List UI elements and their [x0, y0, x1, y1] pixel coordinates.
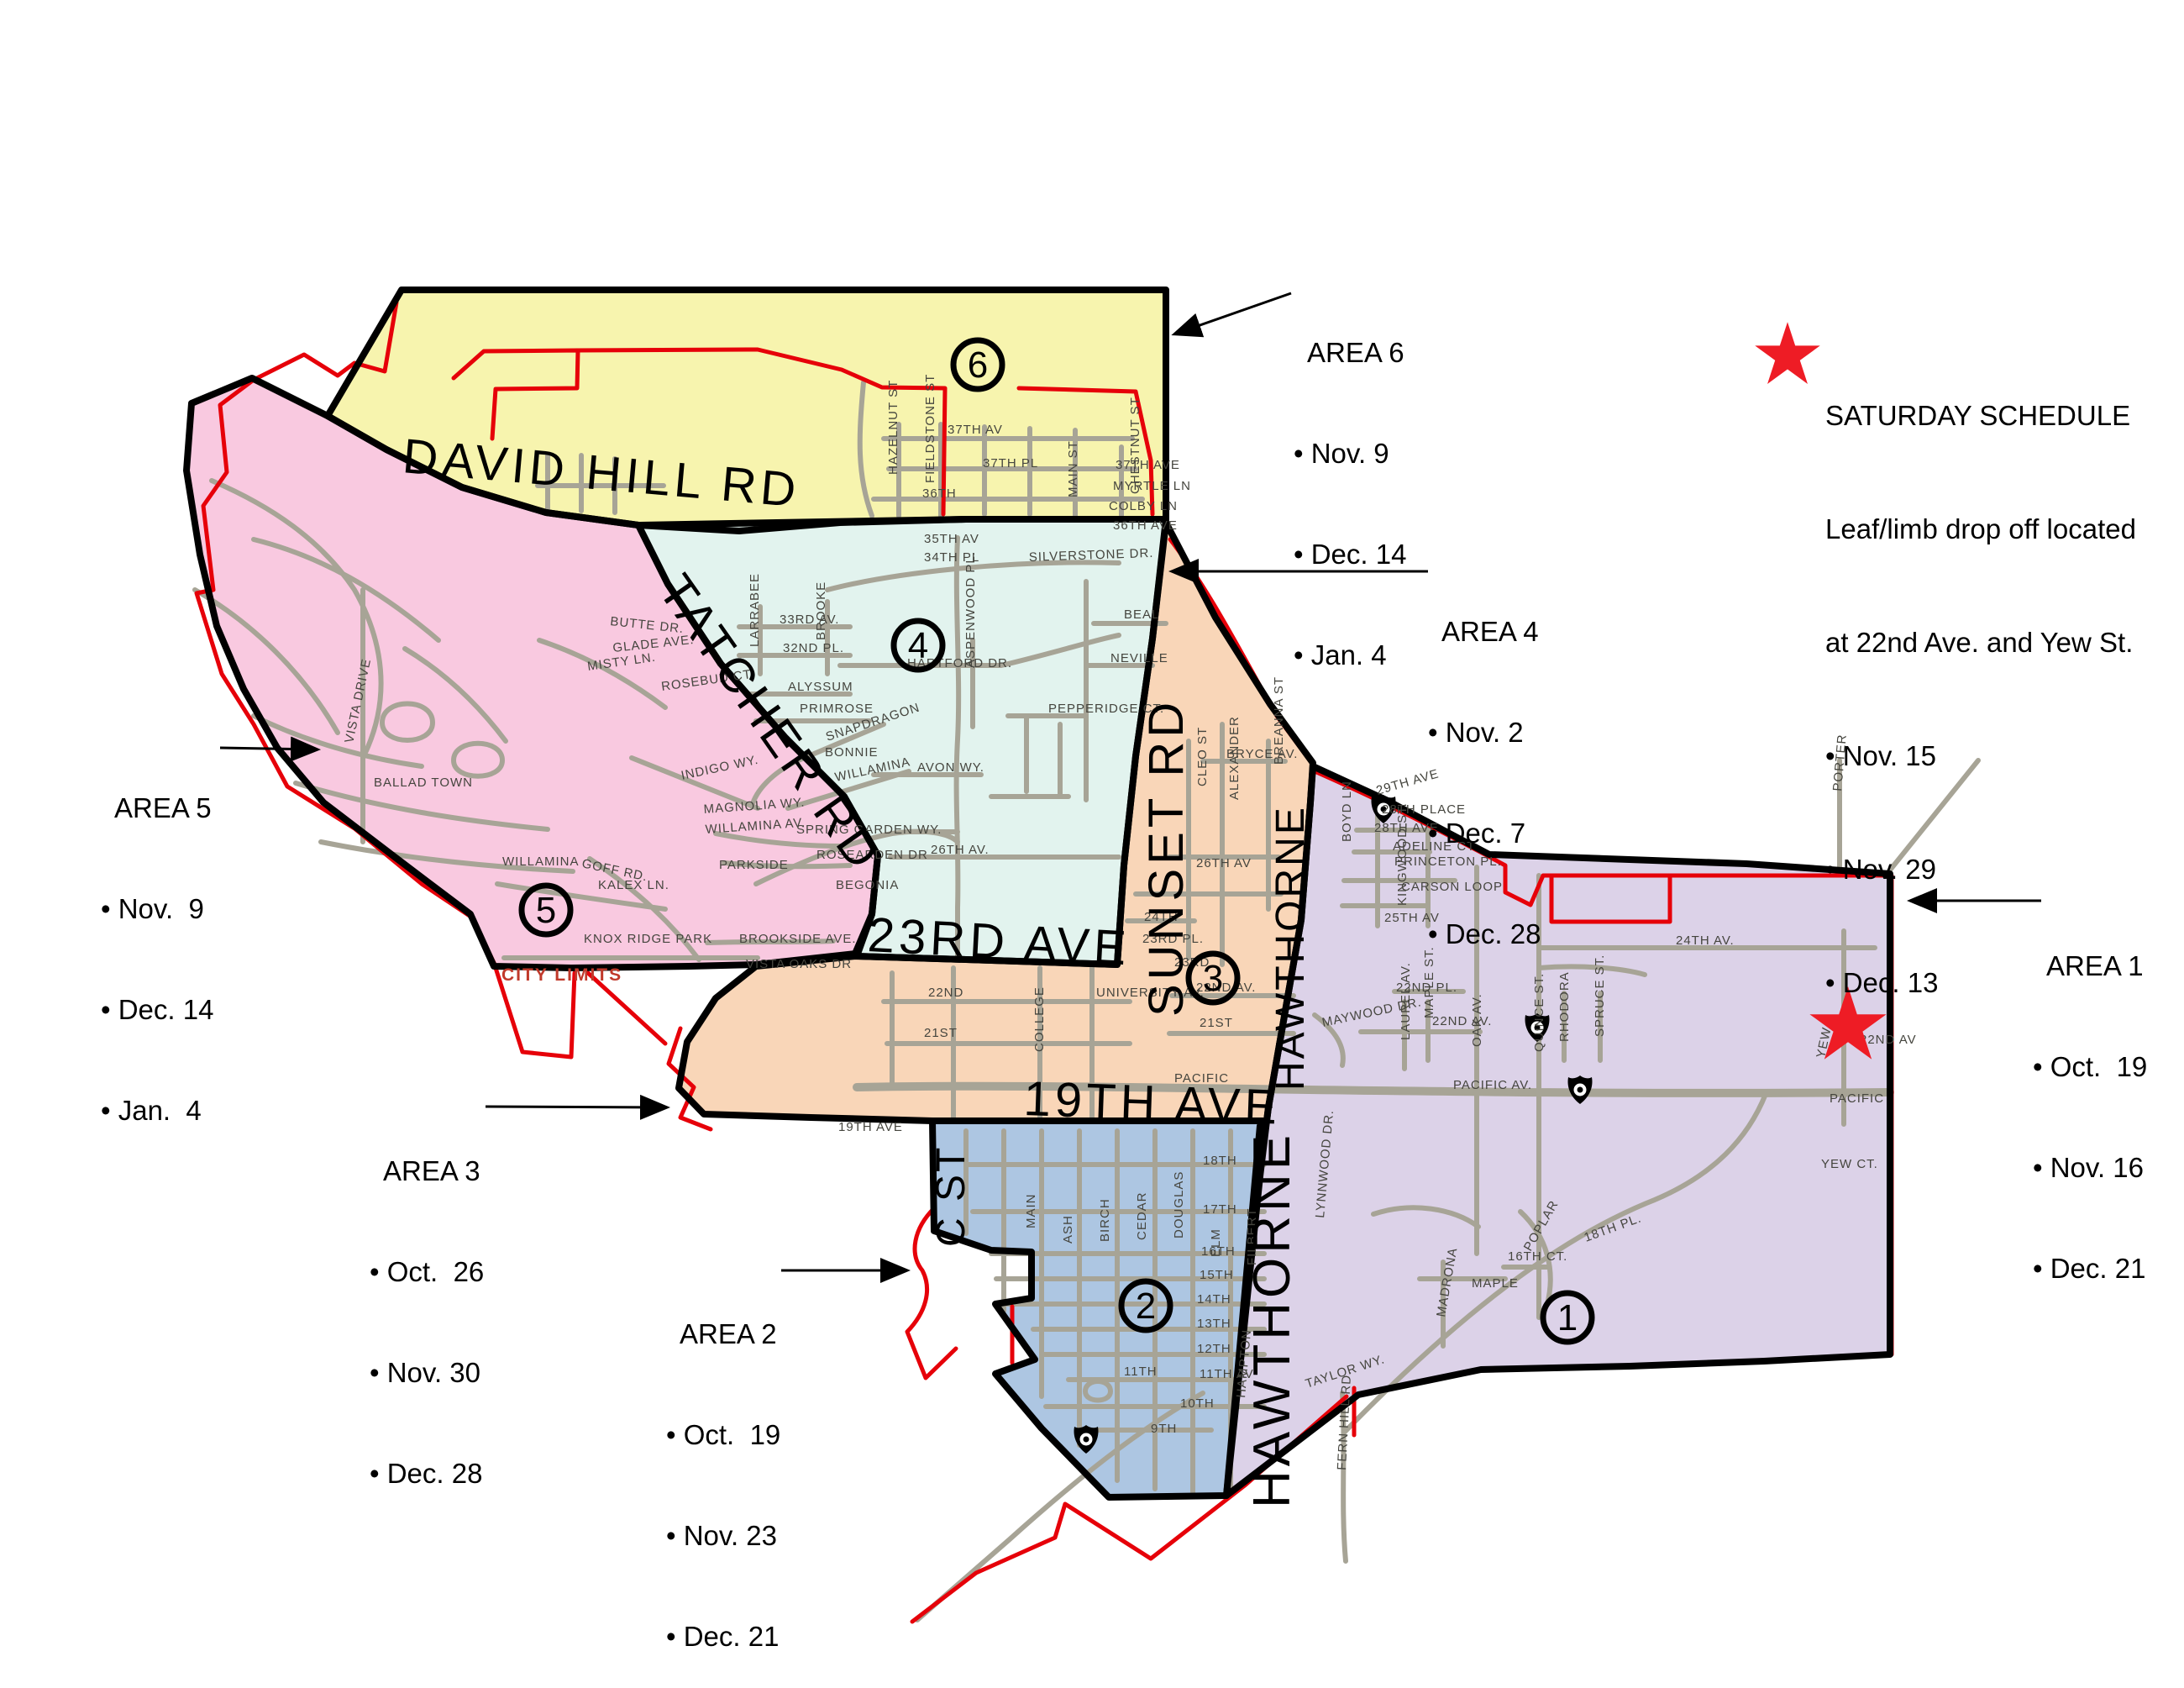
area5-date: • Jan. 4 [101, 1094, 213, 1128]
sunset-rd-label: SUNSET RD [1139, 698, 1194, 1017]
street-label: OAK AV. [1470, 993, 1484, 1047]
street-label: BROOKSIDE AVE. [739, 932, 857, 946]
street-label: 9TH [1151, 1422, 1177, 1436]
street-label: WILLAMINA [502, 855, 580, 869]
area3-number: 3 [1203, 958, 1223, 999]
area4-date: • Dec. 7 [1428, 817, 1541, 850]
street-label: PRIMROSE [800, 702, 874, 716]
area5-date: • Nov. 9 [101, 892, 213, 926]
saturday-schedule-callout: SATURDAY SCHEDULE Leaf/limb drop off loc… [1825, 321, 2136, 1039]
street-label: MAIN ST [1066, 440, 1080, 497]
area2-date: • Oct. 19 [666, 1418, 780, 1452]
area1-date: • Oct. 19 [2033, 1050, 2147, 1084]
street-label: 37TH AVE [1116, 458, 1180, 472]
street-label: DOUGLAS [1172, 1171, 1186, 1238]
street-label: COLBY LN [1109, 499, 1178, 513]
street-label: 36TH [922, 486, 957, 501]
street-label: COLLEGE [1032, 986, 1047, 1052]
area2-number: 2 [1136, 1286, 1156, 1327]
leaf-pickup-area-map: 37TH AV37TH PL36THHAZELNUT STFIELDSTONE … [0, 0, 2184, 1688]
area3-title: AREA 3 [370, 1154, 484, 1188]
area4-date: • Dec. 28 [1428, 918, 1541, 951]
street-label: 26TH AV [1196, 856, 1252, 870]
saturday-schedule-date: • Nov. 15 [1825, 737, 2136, 775]
area3-date: • Nov. 30 [370, 1356, 484, 1390]
street-label: ASH [1061, 1215, 1075, 1244]
area5-arrow [220, 748, 316, 749]
street-label: MAPLE [1472, 1276, 1519, 1291]
street-label: FIELDSTONE ST [923, 374, 937, 483]
area6-number: 6 [968, 344, 988, 386]
street-label: 21ST [1200, 1016, 1233, 1030]
street-label: ALYSSUM [788, 680, 853, 694]
area4-title: AREA 4 [1428, 615, 1541, 649]
street-label: CEDAR [1135, 1191, 1149, 1240]
area6-date: • Jan. 4 [1294, 639, 1406, 672]
street-label: 22ND [928, 986, 963, 1000]
street-label: 11TH [1124, 1365, 1158, 1379]
area3-callout: AREA 3 • Oct. 26 • Nov. 30 • Dec. 28 [370, 1087, 484, 1524]
area5-date: • Dec. 14 [101, 993, 213, 1027]
area5-callout: AREA 5 • Nov. 9 • Dec. 14 • Jan. 4 [101, 724, 213, 1161]
street-label: NEVILLE [1110, 651, 1168, 665]
street-label: 37TH PL [983, 456, 1038, 471]
street-label: 33RD AV. [780, 613, 839, 627]
street-label: 17TH [1203, 1202, 1237, 1217]
area2-region [932, 1121, 1267, 1497]
street-label: LAUREL AV. [1399, 962, 1413, 1040]
hawthorne-north-label: HAWTHORNE [1268, 805, 1313, 1091]
area2-callout: AREA 2 • Oct. 19 • Nov. 23 • Dec. 21 [666, 1250, 780, 1687]
area4-callout: AREA 4 • Nov. 2 • Dec. 7 • Dec. 28 [1428, 548, 1541, 985]
hawthorne-south-label: HAWTHORNE [1243, 1131, 1301, 1508]
street-label: 32ND PL. [783, 641, 844, 655]
street-label: BEGONIA [836, 878, 899, 892]
street-label: AVON WY. [917, 760, 984, 775]
saturday-schedule-date: • Dec. 13 [1825, 964, 2136, 1002]
saturday-schedule-desc: Leaf/limb drop off located [1825, 510, 2136, 548]
street-label: 12TH [1197, 1342, 1231, 1356]
saturday-schedule-date: • Nov. 29 [1825, 850, 2136, 888]
street-label: 26TH AV. [931, 843, 990, 857]
street-label: 35TH AV [924, 532, 979, 546]
area2-title: AREA 2 [666, 1317, 780, 1351]
street-label: BOYD LN [1340, 781, 1354, 842]
area6-date: • Nov. 9 [1294, 437, 1406, 471]
street-label: KNOX RIDGE PARK [584, 932, 712, 946]
street-label: CLEO ST [1195, 727, 1210, 786]
street-label: PARKSIDE [719, 858, 789, 872]
saturday-schedule-desc: at 22nd Ave. and Yew St. [1825, 623, 2136, 661]
saturday-legend-star-icon [1755, 322, 1820, 384]
street-label: 21ST [924, 1026, 958, 1040]
street-label: 37TH AV [948, 423, 1003, 437]
street-label: BALLAD TOWN [374, 776, 473, 790]
street-label: BONNIE [825, 745, 879, 760]
street-label: SPRUCE ST. [1593, 954, 1607, 1037]
area1-number: 1 [1557, 1297, 1578, 1338]
street-label: 16TH CT. [1508, 1249, 1567, 1264]
street-label: 15TH [1200, 1268, 1234, 1282]
area2-date: • Nov. 23 [666, 1519, 780, 1553]
street-label: 13TH [1197, 1317, 1231, 1331]
street-label: 19TH AVE [838, 1120, 903, 1134]
street-label: BIRCH [1098, 1198, 1112, 1242]
area5-title: AREA 5 [101, 791, 213, 825]
street-label: 14TH [1197, 1292, 1231, 1307]
area6-date: • Dec. 14 [1294, 538, 1406, 571]
street-label: PACIFIC [1830, 1091, 1884, 1106]
area6-callout: AREA 6 • Nov. 9 • Dec. 14 • Jan. 4 [1294, 269, 1406, 706]
street-label: ELM [1209, 1228, 1223, 1257]
area4-number: 4 [908, 625, 928, 666]
street-label: BREANNA ST [1272, 676, 1286, 765]
street-label: KALEX LN. [598, 878, 669, 892]
area1-date: • Nov. 16 [2033, 1151, 2147, 1185]
street-label: 10TH [1180, 1396, 1215, 1411]
street-label: VISTA OAKS DR [746, 957, 852, 971]
street-label: MYRTLE LN [1113, 479, 1191, 493]
area3-arrow [486, 1107, 665, 1107]
street-label: LARRABEE [748, 573, 762, 647]
area3-date: • Oct. 26 [370, 1255, 484, 1289]
street-label: 36TH AVE [1113, 518, 1178, 533]
city-limits-label: CITY LIMITS [501, 965, 622, 985]
saturday-schedule-title: SATURDAY SCHEDULE [1825, 397, 2136, 434]
street-label: MAIN [1024, 1194, 1038, 1229]
street-label: ALEXANDER [1227, 716, 1242, 800]
c-st-label: C ST [929, 1145, 974, 1247]
street-label: CHESTNUT ST [1128, 397, 1142, 494]
nineteenth-ave-label: 19TH AVE [1023, 1071, 1283, 1135]
area3-date: • Dec. 28 [370, 1457, 484, 1491]
street-label: 18TH [1203, 1154, 1237, 1168]
area5-number: 5 [536, 890, 556, 931]
area1-date: • Dec. 21 [2033, 1252, 2147, 1286]
street-label: RHODORA [1557, 971, 1572, 1042]
street-label: HAZELNUT ST [886, 380, 900, 475]
street-label: BROOKE [814, 581, 828, 640]
street-label: ASPENWOOD PL. [963, 551, 978, 668]
area6-title: AREA 6 [1294, 336, 1406, 370]
area6-arrow [1176, 293, 1291, 334]
area4-date: • Nov. 2 [1428, 716, 1541, 749]
street-label: YEW CT. [1821, 1157, 1878, 1171]
street-label: BEAL [1124, 607, 1159, 622]
street-label: KINGWOOD ST. [1395, 802, 1410, 906]
street-label: PACIFIC AV. [1453, 1078, 1532, 1092]
area2-date: • Dec. 21 [666, 1620, 780, 1654]
street-label: 24TH AV. [1676, 933, 1735, 948]
